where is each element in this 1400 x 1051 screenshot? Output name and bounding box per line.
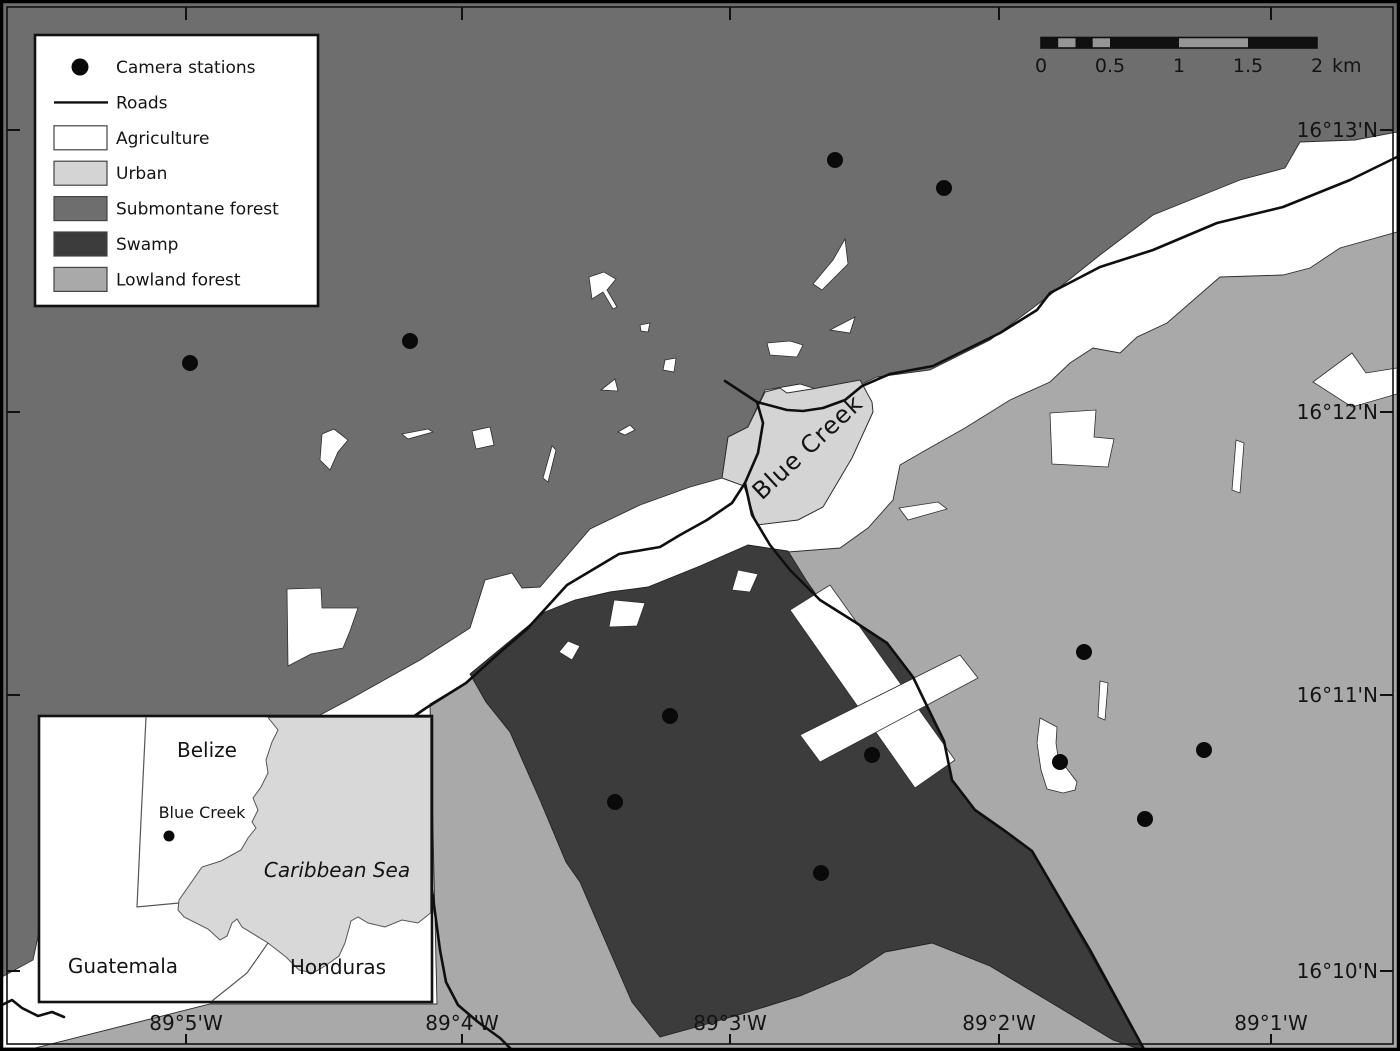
longitude-label: 89°3'W bbox=[693, 1011, 767, 1035]
scale-bar-label: 1 bbox=[1173, 55, 1185, 77]
latitude-label: 16°12'N bbox=[1297, 400, 1378, 424]
longitude-label: 89°4'W bbox=[425, 1011, 499, 1035]
legend-swatch bbox=[54, 126, 107, 150]
scale-bar-segment bbox=[1248, 38, 1317, 49]
scale-bar-segment bbox=[1041, 38, 1058, 49]
legend: Camera stationsRoadsAgricultureUrbanSubm… bbox=[35, 35, 318, 306]
inset-label-blue-creek: Blue Creek bbox=[159, 803, 247, 822]
camera-station-dot bbox=[402, 333, 418, 349]
legend-camera-dot bbox=[72, 59, 89, 76]
camera-station-dot bbox=[1137, 811, 1153, 827]
legend-item-label: Roads bbox=[116, 93, 168, 113]
legend-item-label: Submontane forest bbox=[116, 200, 279, 220]
scale-bar-unit: km bbox=[1332, 55, 1362, 77]
longitude-label: 89°2'W bbox=[962, 1011, 1036, 1035]
map-canvas: Blue Creek 89°5'W89°4'W89°3'W89°2'W89°1'… bbox=[0, 0, 1400, 1051]
camera-station-dot bbox=[607, 794, 623, 810]
inset-label-belize: Belize bbox=[177, 738, 237, 762]
inset-label-honduras: Honduras bbox=[290, 955, 386, 979]
latitude-label: 16°11'N bbox=[1297, 683, 1378, 707]
legend-item-label: Urban bbox=[116, 164, 167, 184]
scale-bar-label: 0 bbox=[1035, 55, 1047, 77]
inset-blue-creek-dot bbox=[164, 831, 175, 842]
latitude-label: 16°13'N bbox=[1297, 118, 1378, 142]
scale-bar-segment bbox=[1076, 38, 1093, 49]
inset-label-caribbean-sea: Caribbean Sea bbox=[264, 858, 410, 882]
legend-swatch bbox=[54, 197, 107, 221]
scale-bar-segment bbox=[1058, 38, 1075, 49]
scale-bar-segment bbox=[1110, 38, 1179, 49]
study-area-map-figure: Blue Creek 89°5'W89°4'W89°3'W89°2'W89°1'… bbox=[0, 0, 1400, 1051]
camera-station-dot bbox=[827, 152, 843, 168]
camera-station-dot bbox=[662, 708, 678, 724]
scale-bar-segment bbox=[1179, 38, 1248, 49]
legend-item-label: Agriculture bbox=[116, 129, 210, 149]
scale-bar-label: 2 bbox=[1311, 55, 1323, 77]
legend-item-label: Lowland forest bbox=[116, 270, 241, 290]
camera-station-dot bbox=[1052, 754, 1068, 770]
inset-map: Belize Blue Creek Caribbean Sea Guatemal… bbox=[39, 716, 432, 1002]
legend-swatch bbox=[54, 161, 107, 185]
camera-station-dot bbox=[182, 355, 198, 371]
latitude-label: 16°10'N bbox=[1297, 959, 1378, 983]
camera-station-dot bbox=[864, 747, 880, 763]
scale-bar-label: 0.5 bbox=[1095, 55, 1125, 77]
scale-bar-label: 1.5 bbox=[1233, 55, 1263, 77]
camera-station-dot bbox=[1076, 644, 1092, 660]
legend-swatch bbox=[54, 232, 107, 256]
camera-station-dot bbox=[813, 865, 829, 881]
legend-item-label: Camera stations bbox=[116, 58, 256, 78]
longitude-label: 89°5'W bbox=[149, 1011, 223, 1035]
legend-swatch bbox=[54, 267, 107, 291]
longitude-label: 89°1'W bbox=[1234, 1011, 1308, 1035]
scale-bar-segment bbox=[1093, 38, 1110, 49]
camera-station-dot bbox=[1196, 742, 1212, 758]
camera-station-dot bbox=[936, 180, 952, 196]
legend-item-label: Swamp bbox=[116, 235, 178, 255]
inset-label-guatemala: Guatemala bbox=[68, 954, 178, 978]
